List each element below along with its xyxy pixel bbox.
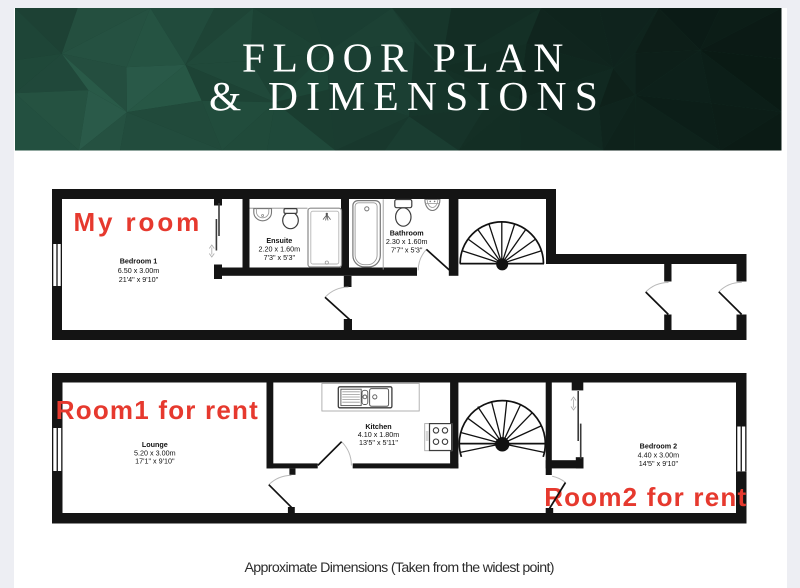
svg-text:7'3" x 5'3": 7'3" x 5'3" bbox=[264, 253, 296, 262]
svg-text:14'5" x 9'10": 14'5" x 9'10" bbox=[639, 459, 679, 468]
svg-text:7'7" x 5'3": 7'7" x 5'3" bbox=[391, 245, 423, 254]
svg-text:17'1" x 9'10": 17'1" x 9'10" bbox=[135, 457, 175, 466]
svg-text:Approximate Dimensions (Taken: Approximate Dimensions (Taken from the w… bbox=[245, 560, 555, 576]
svg-text:Room1 for rent: Room1 for rent bbox=[56, 395, 259, 425]
svg-text:My room: My room bbox=[74, 207, 203, 237]
svg-text:Bedroom 2: Bedroom 2 bbox=[640, 442, 678, 451]
svg-text:& DIMENSIONS: & DIMENSIONS bbox=[209, 73, 606, 119]
svg-text:21'4" x 9'10": 21'4" x 9'10" bbox=[119, 275, 159, 284]
svg-text:13'5" x 5'11": 13'5" x 5'11" bbox=[359, 438, 398, 447]
svg-text:Room2 for rent: Room2 for rent bbox=[544, 482, 747, 512]
svg-text:6.50 x 3.00m: 6.50 x 3.00m bbox=[118, 266, 160, 275]
svg-text:Bedroom 1: Bedroom 1 bbox=[120, 257, 158, 266]
